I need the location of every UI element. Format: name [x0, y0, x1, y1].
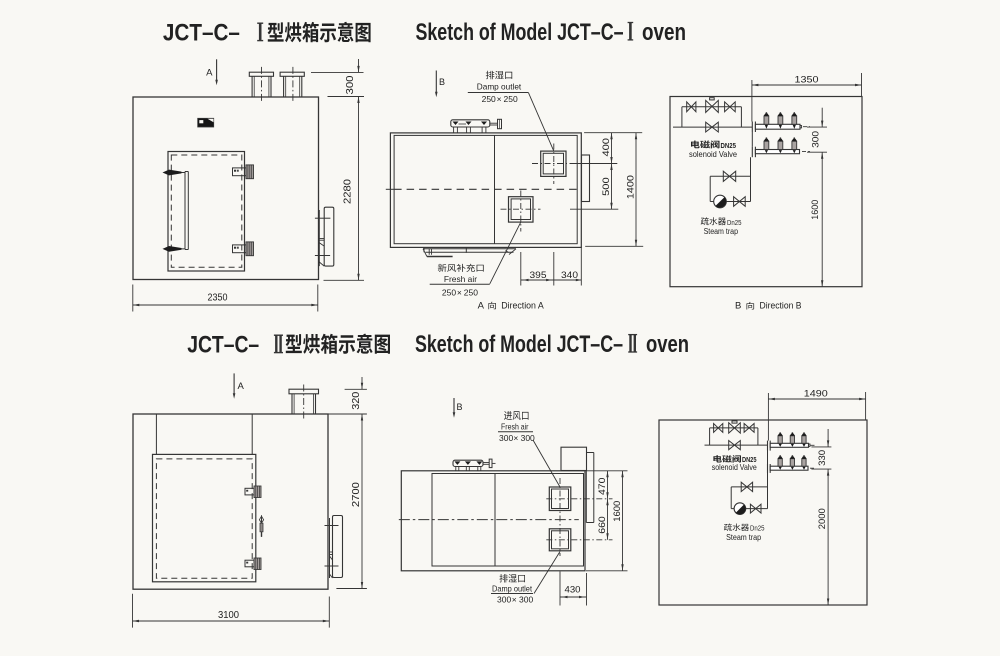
svg-text:300: 300	[811, 131, 822, 148]
svg-text:395: 395	[530, 270, 547, 281]
svg-text:400: 400	[601, 138, 612, 157]
svg-text:Dn25: Dn25	[727, 218, 742, 227]
svg-text:300: 300	[345, 75, 356, 94]
svg-text:Sketch of Model JCT–C–: Sketch of Model JCT–C–	[415, 331, 623, 358]
svg-text:250: 250	[482, 94, 496, 104]
svg-text:1400: 1400	[625, 175, 636, 199]
svg-text:300: 300	[521, 433, 535, 443]
svg-text:3100: 3100	[218, 610, 239, 621]
svg-text:Steam trap: Steam trap	[726, 533, 761, 542]
svg-text:300: 300	[519, 595, 533, 605]
svg-text:Direction A: Direction A	[501, 300, 544, 311]
svg-text:1600: 1600	[810, 200, 821, 220]
svg-text:Dn25: Dn25	[750, 524, 765, 533]
svg-text:250: 250	[442, 288, 456, 298]
svg-text:Fresh air: Fresh air	[444, 274, 477, 284]
svg-text:300: 300	[497, 595, 511, 605]
svg-text:2000: 2000	[817, 508, 828, 529]
svg-text:oven: oven	[642, 19, 686, 46]
svg-text:Damp outlet: Damp outlet	[492, 583, 533, 593]
svg-text:320: 320	[351, 391, 362, 409]
svg-text:A: A	[478, 300, 485, 311]
svg-text:330: 330	[817, 450, 828, 466]
svg-text:340: 340	[561, 270, 578, 281]
svg-text:500: 500	[601, 177, 612, 196]
svg-text:×: ×	[457, 288, 462, 298]
svg-text:solenoid Valve: solenoid Valve	[712, 463, 757, 472]
svg-text:660: 660	[597, 516, 608, 534]
svg-text:×: ×	[512, 595, 517, 605]
svg-text:A: A	[206, 68, 213, 79]
svg-text:×: ×	[513, 433, 518, 443]
svg-text:1350: 1350	[795, 74, 819, 85]
svg-text:solenoid Valve: solenoid Valve	[689, 150, 738, 159]
svg-text:×: ×	[497, 94, 502, 104]
svg-text:Direction B: Direction B	[760, 301, 802, 312]
svg-text:250: 250	[464, 288, 478, 298]
svg-text:B: B	[457, 402, 463, 412]
svg-text:300: 300	[499, 433, 513, 443]
svg-text:Fresh air: Fresh air	[501, 422, 529, 432]
svg-text:1490: 1490	[804, 388, 828, 399]
svg-text:A: A	[238, 381, 245, 392]
svg-text:Sketch of Model JCT–C–: Sketch of Model JCT–C–	[416, 19, 624, 46]
svg-text:470: 470	[597, 478, 608, 496]
svg-text:2350: 2350	[208, 293, 228, 304]
svg-text:430: 430	[565, 584, 581, 595]
svg-text:B: B	[735, 301, 741, 312]
svg-text:JCT–C–: JCT–C–	[187, 332, 259, 359]
svg-text:DN25: DN25	[721, 141, 737, 150]
svg-text:Steam trap: Steam trap	[704, 227, 739, 236]
svg-text:2700: 2700	[351, 482, 362, 507]
svg-text:oven: oven	[646, 331, 689, 358]
svg-text:JCT–C–: JCT–C–	[163, 20, 240, 47]
svg-text:B: B	[439, 77, 445, 87]
svg-text:2280: 2280	[343, 179, 354, 204]
svg-text:Damp outlet: Damp outlet	[477, 81, 522, 91]
svg-text:1600: 1600	[612, 501, 623, 522]
svg-text:250: 250	[504, 94, 518, 104]
